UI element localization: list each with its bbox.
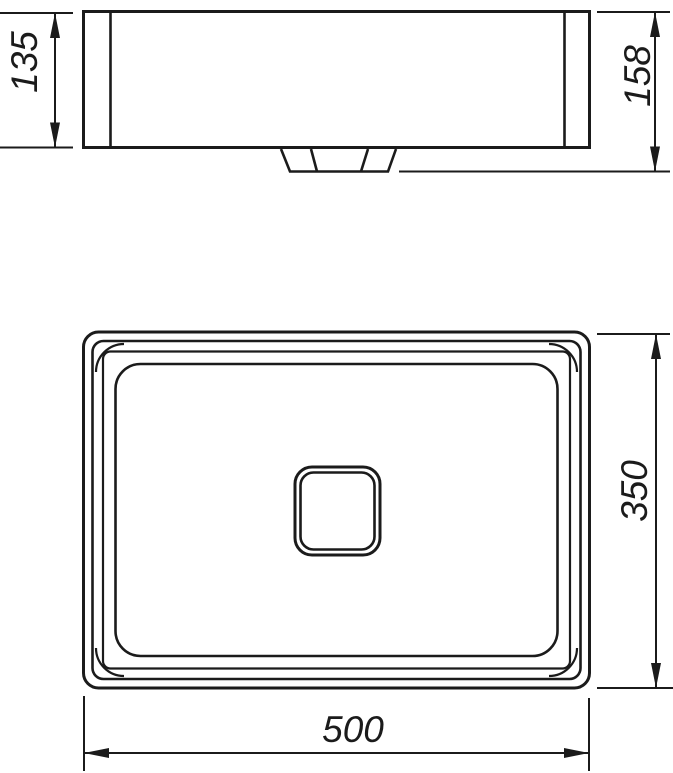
arrow-up-icon [651,334,661,359]
corner-radius-arc [549,344,577,372]
drain-fitting-inner-line [311,149,317,172]
arrow-right-icon [564,748,589,758]
dimension-label: 500 [322,709,384,750]
arrow-left-icon [84,748,109,758]
dimension-side-height: 135 [0,13,73,148]
dimension-label: 158 [617,45,658,107]
corner-radius-arc [96,648,124,676]
drain-fitting-inner-line [361,149,368,172]
dimension-label: 350 [614,460,655,522]
arrow-down-icon [650,147,660,172]
arrow-up-icon [650,12,660,37]
corner-radius-arc [96,344,124,372]
rim-inner-edge [93,341,581,679]
arrow-down-icon [651,663,661,688]
arrow-down-icon [50,123,60,148]
sink-drawing-svg: 135 158 [0,0,673,773]
bowl-bottom-edge [116,364,558,656]
drain-fitting-outline [281,149,396,172]
dimension-plan-depth: 350 [597,334,673,688]
dimension-label: 135 [4,31,45,93]
outer-rim-edge [84,332,590,688]
technical-drawing-page: 135 158 [0,0,673,773]
side-view [84,12,590,172]
dimension-plan-width: 500 [84,696,589,771]
plan-view [84,332,590,688]
bowl-top-edge [103,352,570,669]
drain-square-inner [301,473,375,550]
basin-body-outline [84,12,590,148]
drain-square-outer [295,467,380,555]
corner-radius-arc [549,648,577,676]
arrow-up-icon [50,13,60,38]
